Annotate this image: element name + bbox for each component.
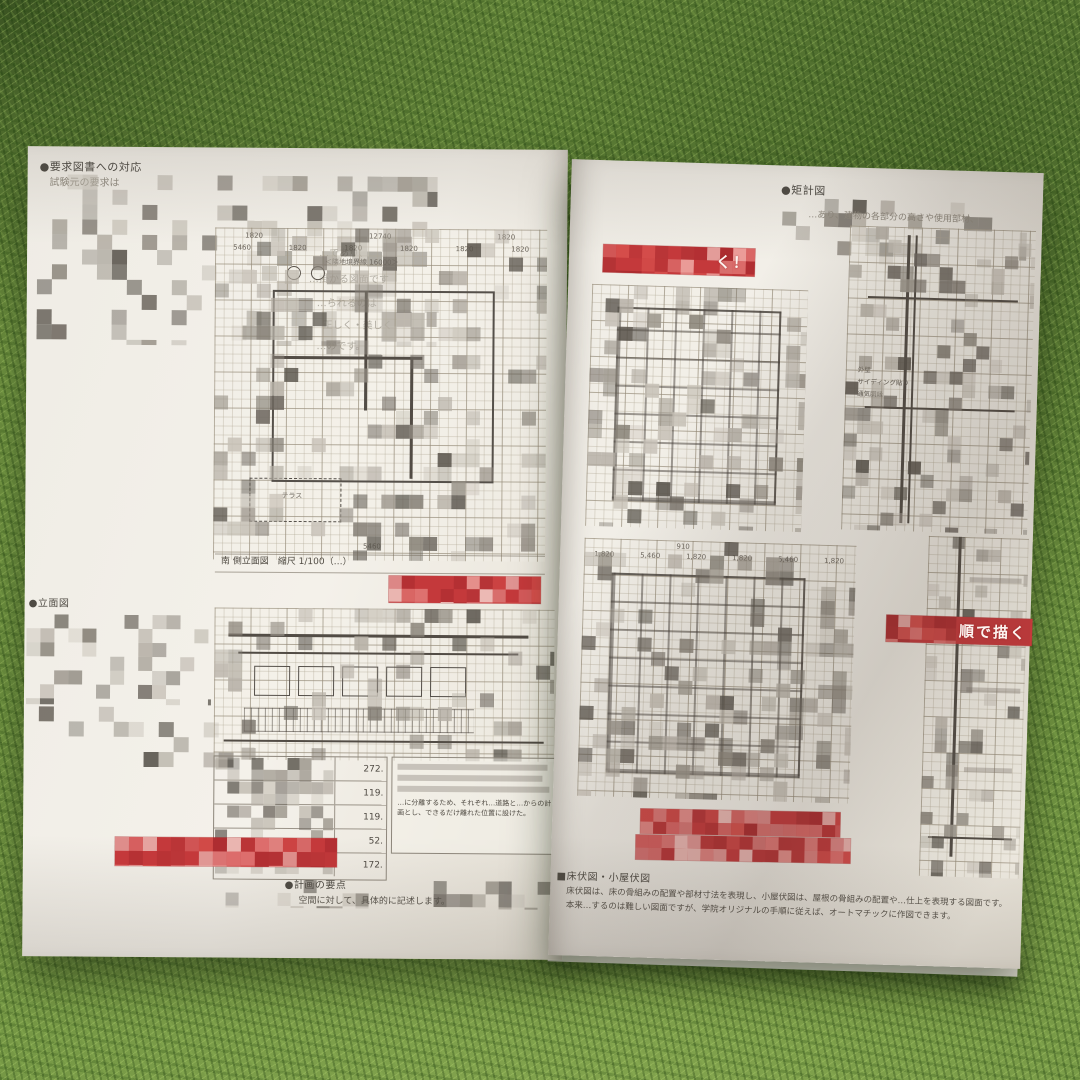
- mosaic-tile: [648, 736, 662, 750]
- mosaic-tile: [760, 767, 774, 781]
- mosaic-tile: [898, 627, 910, 639]
- highlight-banner-censored: [635, 834, 850, 863]
- mosaic-tile: [727, 836, 740, 849]
- mosaic-tile: [52, 219, 67, 234]
- mosaic-tile: [397, 609, 411, 623]
- mosaic-tile: [601, 452, 615, 466]
- mosaic-tile: [499, 894, 512, 907]
- mosaic-tile: [687, 385, 701, 399]
- mosaic-tile: [655, 259, 668, 272]
- mosaic-tile: [323, 770, 333, 782]
- mosaic-tile: [54, 670, 68, 684]
- mosaic-tile: [821, 587, 835, 601]
- mosaic-tile: [241, 522, 255, 536]
- mosaic-tile: [715, 372, 729, 386]
- mosaic-tile: [82, 250, 97, 265]
- mosaic-tile: [897, 639, 909, 644]
- mosaic-tile: [603, 257, 616, 270]
- mosaic-tile: [126, 340, 141, 347]
- mosaic-tile: [299, 782, 311, 794]
- mosaic-tile: [656, 496, 670, 510]
- mosaic-tile: [674, 848, 687, 861]
- mosaic-tile: [614, 495, 628, 509]
- mosaic-tile: [709, 569, 723, 583]
- mosaic-tile: [964, 333, 977, 346]
- mosaic-tile: [52, 234, 67, 249]
- mosaic-tile: [833, 643, 847, 657]
- mosaic-tile: [367, 523, 381, 537]
- mosaic-tile: [439, 609, 453, 623]
- mosaic-tile: [232, 206, 247, 221]
- mosaic-tile: [749, 641, 763, 655]
- mosaic-tile: [438, 453, 452, 467]
- mosaic-tile: [368, 467, 382, 481]
- mosaic-tile: [689, 793, 703, 804]
- mosaic-tile: [901, 266, 914, 279]
- mosaic-tile: [536, 454, 548, 468]
- area-value: 119.: [334, 805, 386, 828]
- side-note-heading: ●立面図: [29, 598, 70, 611]
- mosaic-tile: [686, 399, 700, 413]
- right-intro-heading: ●矩計図: [781, 183, 826, 198]
- mosaic-tile: [961, 669, 973, 681]
- mosaic-tile: [778, 627, 792, 641]
- mosaic-tile: [766, 837, 779, 850]
- mosaic-tile: [845, 728, 857, 742]
- mosaic-tile: [171, 865, 185, 867]
- mosaic-tile: [820, 615, 834, 629]
- mosaic-tile: [719, 710, 733, 724]
- mosaic-tile: [898, 615, 910, 627]
- mosaic-tile: [678, 681, 692, 695]
- mosaic-tile: [765, 850, 778, 863]
- mosaic-tile: [215, 865, 227, 874]
- mosaic-tile: [214, 451, 228, 465]
- mosaic-tile: [40, 684, 54, 698]
- mosaic-tile: [596, 622, 610, 636]
- mosaic-tile: [382, 425, 396, 439]
- censored-side-note: [26, 614, 212, 705]
- mosaic-tile: [434, 881, 447, 894]
- mosaic-tile: [679, 809, 692, 822]
- mosaic-tile: [152, 685, 166, 699]
- mosaic-tile: [681, 259, 694, 272]
- mosaic-tile: [587, 452, 601, 466]
- mosaic-tile: [256, 410, 270, 424]
- mosaic-tile: [550, 652, 554, 666]
- mosaic-tile: [37, 309, 52, 324]
- mosaic-tile: [396, 665, 410, 679]
- mosaic-tile: [953, 537, 965, 549]
- mosaic-tile: [1030, 283, 1036, 296]
- mosaic-tile: [979, 862, 991, 874]
- mosaic-tile: [681, 246, 694, 259]
- mosaic-tile: [804, 851, 817, 864]
- mosaic-tile: [694, 247, 707, 260]
- mosaic-tile: [114, 722, 129, 737]
- mosaic-tile: [229, 270, 243, 284]
- mosaic-tile: [605, 312, 619, 326]
- mosaic-tile: [718, 752, 732, 766]
- mosaic-tile: [676, 737, 690, 751]
- mosaic-tile: [493, 576, 506, 589]
- mosaic-tile: [311, 522, 325, 536]
- mosaic-tile: [129, 865, 143, 867]
- mosaic-tile: [848, 602, 856, 616]
- mosaic-tile: [299, 770, 311, 782]
- mosaic-tile: [112, 190, 127, 205]
- mosaic-tile: [946, 488, 959, 501]
- mosaic-tile: [467, 602, 480, 604]
- mosaic-tile: [939, 280, 952, 293]
- mosaic-tile: [152, 615, 166, 629]
- mosaic-tile: [603, 244, 616, 257]
- mosaic-tile: [843, 446, 856, 459]
- mosaic-tile: [732, 288, 746, 302]
- mosaic-tile: [817, 838, 830, 851]
- mosaic-tile: [355, 284, 369, 298]
- mosaic-tile: [255, 838, 269, 852]
- mosaic-tile: [958, 741, 970, 753]
- mosaic-tile: [597, 566, 611, 580]
- mosaic-tile: [40, 698, 54, 705]
- mosaic-tile: [213, 851, 227, 865]
- mosaic-tile: [832, 699, 846, 713]
- mosaic-tile: [383, 609, 397, 623]
- mosaic-tile: [876, 226, 889, 239]
- mosaic-tile: [894, 487, 907, 500]
- mosaic-tile: [952, 281, 965, 294]
- mosaic-tile: [460, 894, 473, 907]
- mosaic-tile: [413, 177, 428, 192]
- mosaic-tile: [689, 315, 703, 329]
- mosaic-tile: [453, 271, 467, 285]
- mosaic-tile: [215, 757, 227, 769]
- mosaic-tile: [746, 753, 760, 767]
- mosaic-tile: [327, 270, 341, 284]
- mosaic-tile: [603, 368, 617, 382]
- mosaic-tile: [779, 572, 793, 586]
- mosaic-tile: [804, 698, 818, 712]
- mosaic-tile: [832, 685, 846, 699]
- mosaic-tile: [675, 793, 689, 804]
- mosaic-tile: [39, 706, 54, 721]
- mosaic-tile: [369, 299, 383, 313]
- mosaic-tile: [688, 835, 701, 848]
- mosaic-tile: [633, 777, 647, 791]
- mosaic-tile: [180, 657, 194, 671]
- mosaic-tile: [695, 569, 709, 583]
- mosaic-tile: [700, 399, 714, 413]
- mosaic-tile: [287, 782, 299, 794]
- mosaic-tile: [213, 521, 227, 535]
- mosaic-tile: [988, 550, 1000, 562]
- mosaic-tile: [395, 495, 409, 509]
- mosaic-tile: [51, 324, 66, 339]
- mosaic-tile: [166, 615, 180, 629]
- mosaic-tile: [427, 192, 437, 207]
- mosaic-tile: [454, 602, 467, 604]
- mosaic-tile: [631, 369, 645, 383]
- mosaic-tile: [661, 848, 674, 861]
- mosaic-tile: [228, 678, 242, 692]
- mosaic-tile: [480, 637, 494, 651]
- mosaic-tile: [666, 809, 679, 822]
- mosaic-tile: [774, 739, 788, 753]
- mosaic-tile: [635, 847, 648, 860]
- mosaic-tile: [270, 438, 284, 452]
- mosaic-tile: [733, 710, 747, 724]
- mosaic-tile: [299, 758, 311, 770]
- mosaic-tile: [849, 264, 862, 277]
- mosaic-tile: [738, 556, 752, 570]
- mosaic-tile: [949, 371, 962, 384]
- mosaic-tile: [402, 589, 415, 602]
- mosaic-tile: [438, 735, 452, 749]
- mosaic-tile: [607, 720, 621, 734]
- mosaic-tile: [311, 806, 323, 818]
- mosaic-tile: [664, 666, 678, 680]
- mosaic-tile: [662, 736, 676, 750]
- mosaic-tile: [158, 175, 173, 190]
- mosaic-tile: [352, 206, 367, 221]
- mosaic-tile: [284, 368, 298, 382]
- mosaic-tile: [1018, 243, 1031, 256]
- mosaic-tile: [536, 666, 550, 680]
- mosaic-tile: [383, 243, 397, 257]
- mosaic-tile: [886, 627, 898, 639]
- mosaic-tile: [410, 735, 424, 749]
- mosaic-tile: [410, 327, 424, 341]
- mosaic-tile: [507, 523, 521, 537]
- mosaic-tile: [298, 466, 312, 480]
- mosaic-tile: [732, 766, 746, 780]
- mosaic-tile: [270, 382, 284, 396]
- mosaic-tile: [971, 729, 983, 741]
- mosaic-tile: [604, 340, 618, 354]
- mosaic-tile: [714, 836, 727, 849]
- mosaic-tile: [658, 412, 672, 426]
- mosaic-tile: [973, 669, 985, 681]
- mosaic-tile: [627, 509, 641, 523]
- mosaic-tile: [752, 850, 765, 863]
- mosaic-tile: [615, 271, 628, 277]
- mosaic-tile: [795, 500, 808, 514]
- mosaic-tile: [956, 813, 968, 825]
- mosaic-tile: [668, 554, 682, 568]
- mosaic-tile: [199, 851, 213, 865]
- mosaic-tile: [412, 192, 427, 207]
- left-footer-line: 空間に対して、具体的に記述します。: [299, 896, 450, 908]
- mosaic-tile: [438, 397, 452, 411]
- mosaic-tile: [339, 508, 353, 522]
- mosaic-tile: [976, 346, 989, 359]
- mosaic-tile: [82, 220, 97, 235]
- mosaic-tile: [112, 250, 127, 265]
- mosaic-tile: [923, 371, 936, 384]
- mosaic-tile: [1013, 425, 1026, 438]
- censored-banner-text: [886, 615, 957, 644]
- mosaic-tile: [910, 615, 922, 627]
- mosaic-tile: [820, 629, 834, 643]
- mosaic-tile: [82, 643, 96, 657]
- mosaic-tile: [786, 346, 800, 360]
- mosaic-tile: [157, 250, 172, 265]
- mosaic-tile: [989, 360, 1002, 373]
- note-fragment: …に分離するため、それぞれ…道路と…からの計画とし、できるだけ離れた位置に設けた…: [397, 798, 552, 819]
- mosaic-tile: [382, 207, 397, 222]
- mosaic-tile: [382, 637, 396, 651]
- mosaic-tile: [731, 810, 744, 823]
- roof-framing-plan: 910 1,820 5,460 1,820 1,820 5,460 1,820: [577, 538, 857, 804]
- mosaic-tile: [82, 205, 97, 220]
- censored-detail-drawing: [841, 225, 1036, 534]
- mosaic-tile: [410, 355, 424, 369]
- mosaic-tile: [524, 908, 537, 910]
- mosaic-tile: [845, 381, 858, 394]
- mosaic-tile: [731, 823, 744, 836]
- mosaic-tile: [672, 412, 686, 426]
- mosaic-tile: [805, 642, 819, 656]
- mosaic-tile: [270, 354, 284, 368]
- mosaic-tile: [424, 369, 438, 383]
- mosaic-tile: [263, 818, 275, 830]
- mosaic-tile: [676, 765, 690, 779]
- mosaic-tile: [592, 734, 606, 748]
- mosaic-tile: [215, 283, 229, 297]
- mosaic-tile: [227, 866, 239, 875]
- mosaic-tile: [382, 397, 396, 411]
- mosaic-tile: [935, 423, 948, 436]
- mosaic-tile: [532, 577, 541, 590]
- mosaic-tile: [744, 811, 757, 824]
- mosaic-tile: [714, 428, 728, 442]
- mosaic-tile: [647, 313, 661, 327]
- mosaic-tile: [323, 866, 334, 874]
- mosaic-tile: [395, 523, 409, 537]
- mosaic-tile: [857, 421, 870, 434]
- mosaic-tile: [227, 838, 241, 852]
- censored-roof-plan: [577, 538, 857, 804]
- mosaic-tile: [998, 490, 1011, 503]
- mosaic-tile: [355, 608, 369, 622]
- mosaic-tile: [171, 837, 185, 851]
- censored-banner-text: [389, 576, 541, 604]
- mosaic-tile: [480, 693, 494, 707]
- mosaic-tile: [656, 482, 670, 496]
- mosaic-tile: [898, 357, 911, 370]
- mosaic-tile: [341, 242, 355, 256]
- mosaic-tile: [925, 668, 937, 680]
- mosaic-tile: [228, 664, 242, 678]
- mosaic-tile: [992, 826, 1004, 838]
- mosaic-tile: [508, 369, 522, 383]
- mosaic-tile: [721, 640, 735, 654]
- mosaic-tile: [269, 494, 283, 508]
- mosaic-tile: [54, 614, 68, 628]
- mosaic-tile: [860, 304, 873, 317]
- mosaic-tile: [785, 374, 799, 388]
- mosaic-tile: [495, 229, 509, 243]
- mosaic-tile: [82, 629, 96, 643]
- mosaic-tile: [396, 707, 410, 721]
- photo-scene: ●要求図書への対応 試験元の要求は …であり、 …掛かる図面です …られるのは …: [0, 0, 1080, 1080]
- mosaic-tile: [283, 852, 297, 866]
- mosaic-tile: [730, 358, 744, 372]
- mosaic-tile: [621, 707, 635, 721]
- mosaic-tile: [241, 852, 255, 866]
- mosaic-tile: [649, 722, 663, 736]
- mosaic-tile: [787, 318, 801, 332]
- mosaic-tile: [577, 790, 591, 804]
- mosaic-tile: [452, 355, 466, 369]
- mosaic-tile: [620, 749, 634, 763]
- mosaic-tile: [326, 382, 340, 396]
- mosaic-tile: [521, 496, 535, 510]
- mosaic-tile: [653, 809, 666, 822]
- mosaic-tile: [884, 396, 897, 409]
- mosaic-tile: [979, 874, 991, 879]
- mosaic-tile: [194, 629, 208, 643]
- mosaic-tile: [285, 270, 299, 284]
- mosaic-tile: [679, 822, 692, 835]
- mosaic-tile: [615, 439, 629, 453]
- mosaic-tile: [727, 456, 741, 470]
- mosaic-tile: [256, 396, 270, 410]
- censored-note-line: [397, 786, 549, 793]
- mosaic-tile: [817, 851, 830, 864]
- mosaic-tile: [934, 628, 946, 640]
- mosaic-tile: [536, 356, 547, 370]
- mosaic-tile: [269, 838, 283, 852]
- mosaic-tile: [353, 494, 367, 508]
- mosaic-tile: [97, 235, 112, 250]
- mosaic-tile: [705, 723, 719, 737]
- mosaic-tile: [790, 670, 804, 684]
- mosaic-tile: [959, 489, 972, 502]
- mosaic-tile: [495, 285, 509, 299]
- mosaic-tile: [999, 438, 1012, 451]
- mosaic-tile: [913, 279, 926, 292]
- mosaic-tile: [919, 514, 932, 527]
- censored-banner-text: [115, 837, 337, 868]
- mosaic-tile: [257, 312, 271, 326]
- mosaic-tile: [213, 837, 227, 851]
- mosaic-tile: [172, 280, 187, 295]
- mosaic-tile: [255, 852, 269, 866]
- mosaic-tile: [668, 259, 681, 272]
- mosaic-tile: [508, 651, 522, 665]
- mosaic-tile: [275, 770, 287, 782]
- mosaic-tile: [1005, 256, 1018, 269]
- mosaic-tile: [368, 425, 382, 439]
- mosaic-tile: [970, 741, 982, 753]
- mosaic-tile: [494, 721, 508, 735]
- mosaic-tile: [598, 552, 612, 566]
- mosaic-tile: [680, 272, 693, 276]
- mosaic-tile: [467, 243, 481, 257]
- banner-visible-text: 順で描く: [959, 620, 1028, 643]
- mosaic-tile: [693, 273, 706, 277]
- banner-visible-text: く！: [716, 251, 751, 273]
- mosaic-tile: [508, 721, 522, 735]
- mosaic-tile: [967, 861, 979, 873]
- mosaic-tile: [606, 762, 620, 776]
- mosaic-tile: [340, 466, 354, 480]
- mosaic-tile: [166, 671, 180, 685]
- mosaic-tile: [687, 848, 700, 861]
- mosaic-tile: [269, 852, 283, 866]
